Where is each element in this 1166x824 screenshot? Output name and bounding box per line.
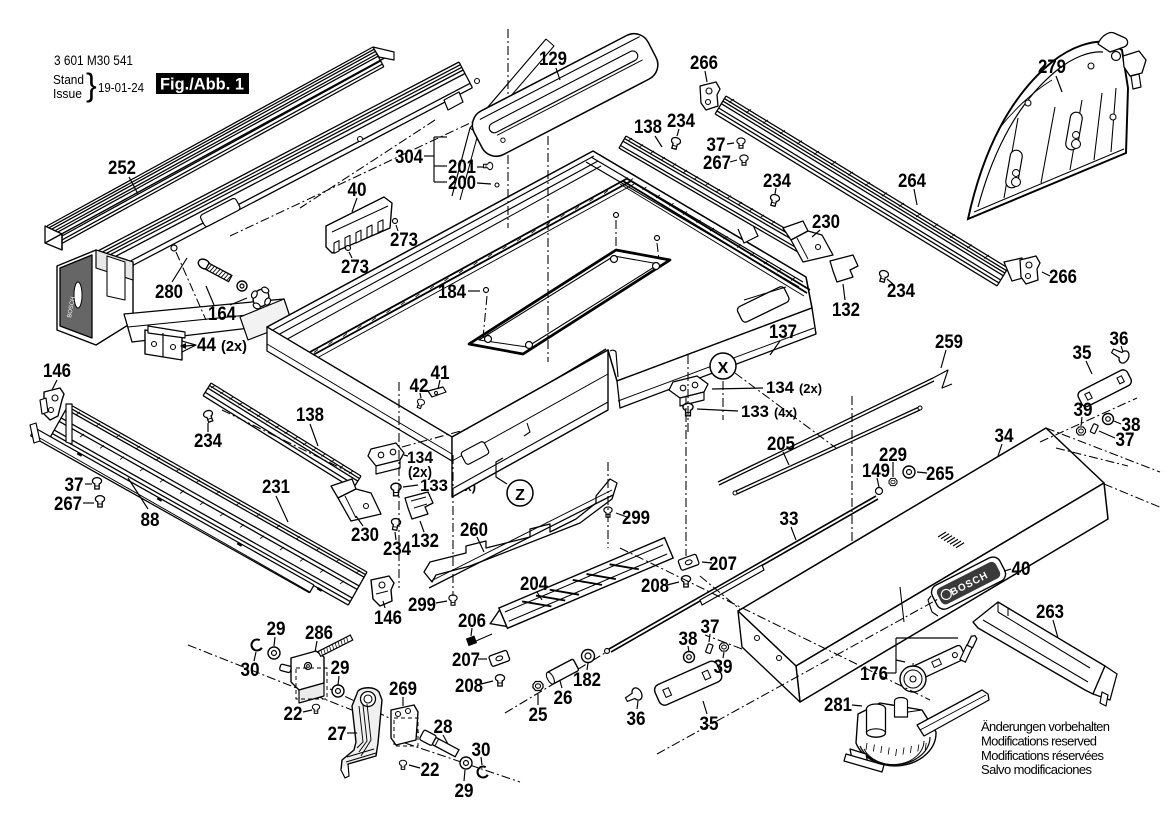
svg-text:34: 34 xyxy=(995,426,1014,447)
svg-text:36: 36 xyxy=(1110,329,1129,350)
svg-text:146: 146 xyxy=(43,361,71,382)
svg-text:205: 205 xyxy=(767,434,795,455)
svg-text:39: 39 xyxy=(714,657,733,678)
svg-text:234: 234 xyxy=(887,281,915,302)
svg-text:132: 132 xyxy=(411,531,439,552)
svg-text:265: 265 xyxy=(926,464,954,485)
svg-text:138: 138 xyxy=(634,117,662,138)
svg-text:263: 263 xyxy=(1036,602,1064,623)
svg-text:30: 30 xyxy=(241,660,260,681)
svg-text:88: 88 xyxy=(141,510,160,531)
svg-text:234: 234 xyxy=(194,431,222,452)
svg-text:33: 33 xyxy=(780,509,799,530)
svg-text:269: 269 xyxy=(389,679,417,700)
svg-text:27: 27 xyxy=(328,724,347,745)
svg-text:29: 29 xyxy=(455,781,474,802)
svg-text:Z: Z xyxy=(515,487,525,504)
svg-text:138: 138 xyxy=(296,405,324,426)
svg-text:182: 182 xyxy=(573,670,601,691)
svg-text:42: 42 xyxy=(410,376,429,397)
svg-text:230: 230 xyxy=(351,525,379,546)
svg-text:299: 299 xyxy=(408,595,436,616)
svg-text:231: 231 xyxy=(262,477,290,498)
svg-text:280: 280 xyxy=(155,282,183,303)
svg-text:259: 259 xyxy=(935,332,963,353)
svg-text:234: 234 xyxy=(383,539,411,560)
svg-text:129: 129 xyxy=(539,49,567,70)
svg-text:Fig./Abb. 1: Fig./Abb. 1 xyxy=(160,76,244,94)
svg-text:267: 267 xyxy=(54,494,82,515)
svg-text:279: 279 xyxy=(1038,57,1066,78)
svg-text:29: 29 xyxy=(267,619,286,640)
svg-text:264: 264 xyxy=(898,171,926,192)
svg-text:X: X xyxy=(718,360,729,377)
svg-text:25: 25 xyxy=(529,705,548,726)
svg-text:200: 200 xyxy=(448,173,476,194)
svg-text:266: 266 xyxy=(690,53,718,74)
svg-text:176: 176 xyxy=(860,664,888,685)
svg-text:26: 26 xyxy=(554,688,573,709)
svg-text:207: 207 xyxy=(452,650,480,671)
svg-text:Stand: Stand xyxy=(53,73,84,87)
svg-text:35: 35 xyxy=(1073,343,1092,364)
svg-text:22: 22 xyxy=(421,760,440,781)
svg-text:146: 146 xyxy=(374,608,402,629)
svg-text:304: 304 xyxy=(395,147,423,168)
svg-text:252: 252 xyxy=(108,158,136,179)
svg-text:44(2x): 44(2x) xyxy=(197,335,247,356)
svg-text:208: 208 xyxy=(455,676,483,697)
svg-text:}: } xyxy=(86,67,97,103)
svg-text:234: 234 xyxy=(667,111,695,132)
svg-text:207: 207 xyxy=(709,554,737,575)
svg-text:260: 260 xyxy=(460,520,488,541)
svg-text:40: 40 xyxy=(1012,559,1031,580)
svg-text:137: 137 xyxy=(769,322,797,343)
svg-text:3 601 M30 541: 3 601 M30 541 xyxy=(54,53,133,68)
svg-text:164: 164 xyxy=(208,304,236,325)
svg-text:Issue: Issue xyxy=(53,87,82,101)
svg-text:35: 35 xyxy=(700,714,719,735)
svg-text:286: 286 xyxy=(305,623,333,644)
svg-text:Änderungen vorbehaltenModifica: Änderungen vorbehaltenModifications rese… xyxy=(981,719,1110,777)
svg-text:299: 299 xyxy=(622,508,650,529)
svg-text:267: 267 xyxy=(703,153,731,174)
svg-text:37: 37 xyxy=(1116,430,1135,451)
svg-text:230: 230 xyxy=(812,212,840,233)
svg-text:22: 22 xyxy=(284,704,303,725)
svg-text:208: 208 xyxy=(641,576,669,597)
svg-text:37: 37 xyxy=(65,475,84,496)
svg-text:39: 39 xyxy=(1074,400,1093,421)
svg-text:234: 234 xyxy=(763,171,791,192)
svg-text:184: 184 xyxy=(438,282,466,303)
svg-text:281: 281 xyxy=(824,695,852,716)
svg-text:19-01-24: 19-01-24 xyxy=(98,80,144,95)
svg-text:29: 29 xyxy=(331,658,350,679)
svg-text:28: 28 xyxy=(434,717,453,738)
svg-text:204: 204 xyxy=(520,574,548,595)
svg-text:132: 132 xyxy=(832,300,860,321)
svg-text:40: 40 xyxy=(348,180,367,201)
svg-text:266: 266 xyxy=(1049,267,1077,288)
svg-text:36: 36 xyxy=(627,709,646,730)
